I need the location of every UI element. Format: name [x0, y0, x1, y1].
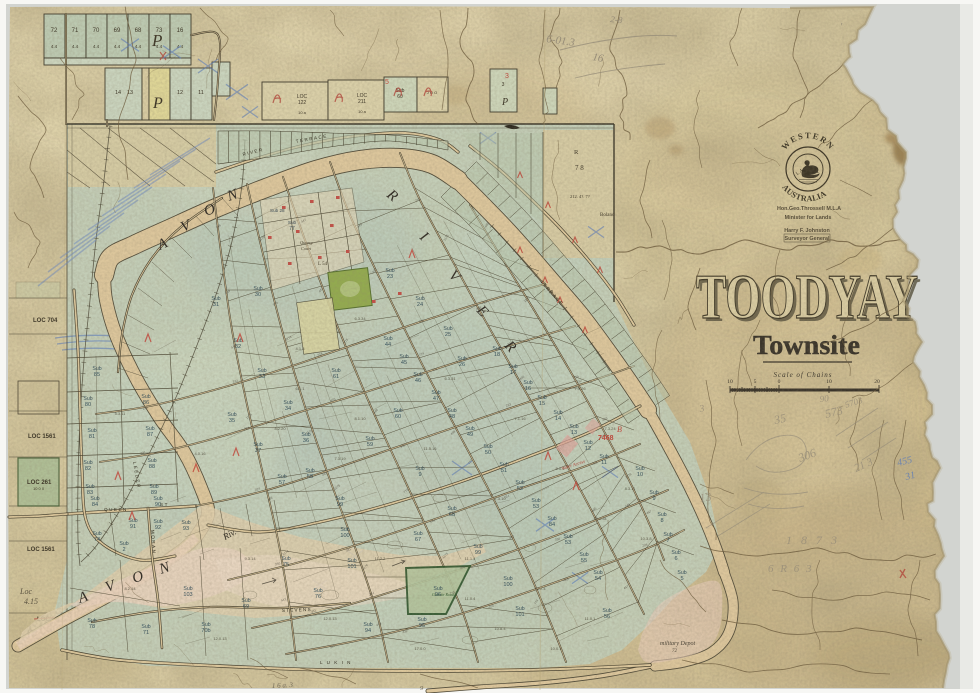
svg-text:1 8 7 3: 1 8 7 3 — [786, 533, 840, 547]
svg-text:1 6 a. 3: 1 6 a. 3 — [272, 681, 294, 690]
svg-text:13: 13 — [698, 489, 712, 505]
svg-text:90: 90 — [819, 393, 829, 404]
svg-text:2-8: 2-8 — [610, 14, 623, 25]
svg-text:6 R 6 3: 6 R 6 3 — [768, 563, 813, 575]
